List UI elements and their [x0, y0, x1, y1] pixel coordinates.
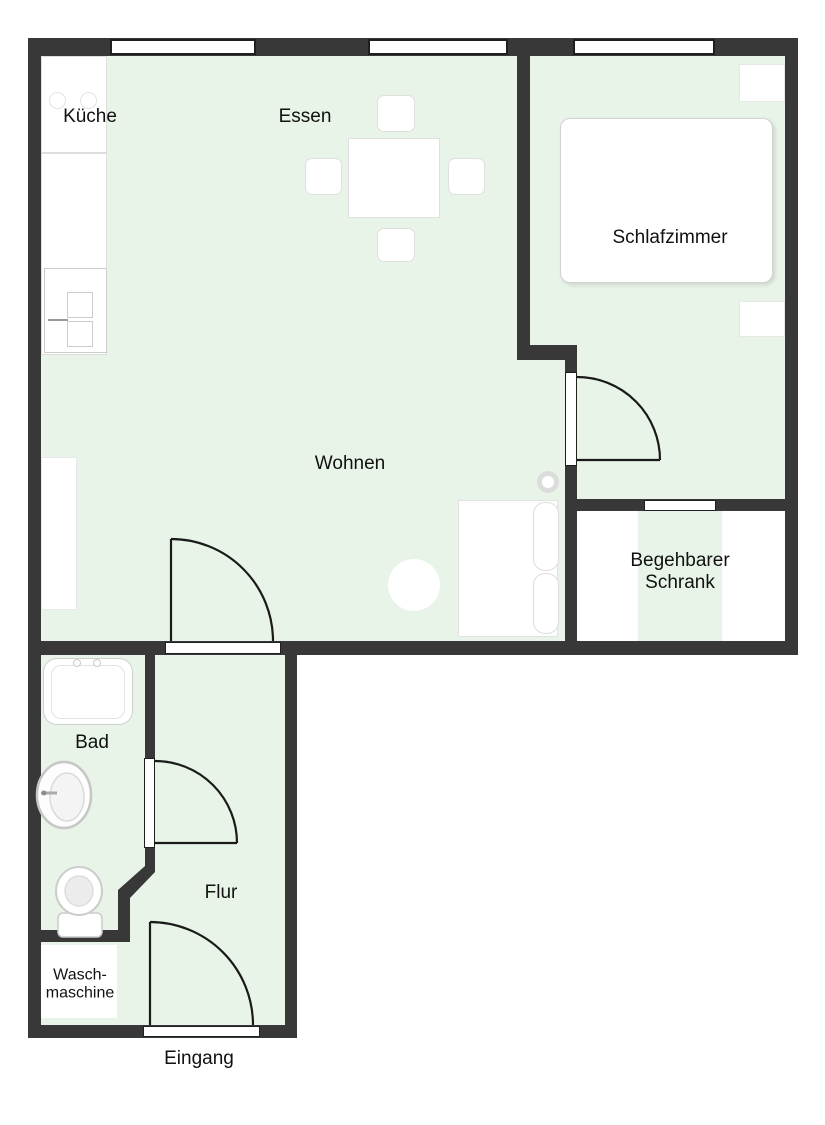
room-label-bad: Bad — [75, 732, 109, 754]
room-label-kueche: Küche — [63, 106, 117, 128]
room-label-flur: Flur — [205, 882, 238, 904]
toilet-tank — [58, 913, 102, 937]
room-label-schlafzimmer: Schlafzimmer — [612, 227, 727, 249]
door-swing-arc — [155, 761, 237, 843]
toilet-bowl-inner — [65, 876, 93, 906]
room-label-line: maschine — [46, 985, 114, 1003]
sink-basin — [50, 773, 84, 821]
room-label-begehbarer-schrank: Begehbarer Schrank — [630, 550, 729, 594]
toilet — [56, 867, 102, 937]
wall-diagonal-jog — [118, 866, 155, 898]
door-swing-arc — [577, 377, 660, 460]
room-label-line: Begehbarer — [630, 550, 729, 572]
room-label-line: Schrank — [630, 572, 729, 594]
room-label-waschmaschine: Wasch- maschine — [46, 967, 114, 1004]
bathroom-sink — [37, 762, 91, 828]
room-label-line: Wasch- — [46, 967, 114, 985]
sink-faucet-dot — [42, 791, 47, 796]
room-label-essen: Essen — [279, 106, 332, 128]
door-schlafzimmer — [577, 377, 660, 460]
room-label-eingang: Eingang — [164, 1048, 234, 1070]
door-entrance — [150, 922, 253, 1025]
door-swing-arc — [171, 539, 273, 641]
door-wohnen-flur — [171, 539, 273, 641]
floor-plan: Küche Essen Schlafzimmer Wohnen Begehbar… — [0, 0, 825, 1125]
door-swing-arc — [150, 922, 253, 1025]
room-label-wohnen: Wohnen — [315, 453, 385, 475]
door-bad — [155, 761, 237, 843]
